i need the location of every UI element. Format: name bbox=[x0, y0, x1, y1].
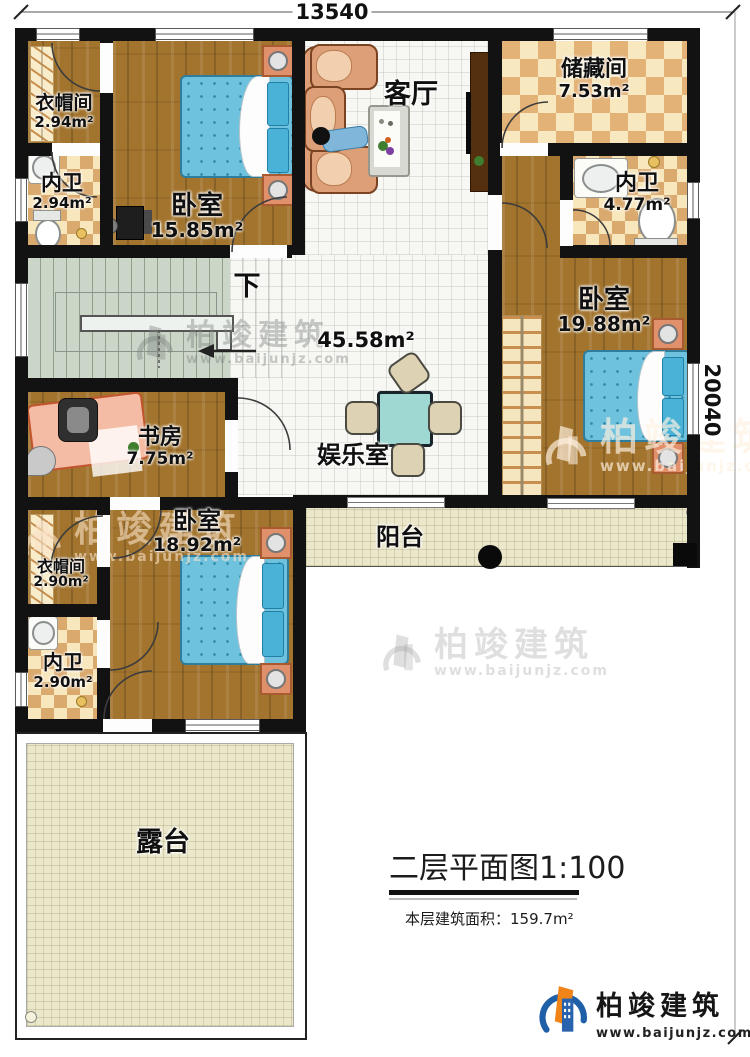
room-label-bedroom-bottomleft: 卧室18.92m² bbox=[153, 509, 241, 555]
wall bbox=[15, 28, 28, 732]
stairs-down-label: 下 bbox=[234, 272, 261, 301]
room-label-bath-topleft: 内卫2.94m² bbox=[32, 172, 91, 211]
window bbox=[36, 28, 80, 41]
office-chair bbox=[58, 398, 98, 442]
wall bbox=[28, 378, 225, 392]
title-block: 二层平面图1:100 本层建筑面积：159.7m² bbox=[389, 843, 625, 929]
room-label-bedroom-topleft: 卧室15.85m² bbox=[151, 192, 244, 242]
hall-area-label: 45.58m² bbox=[317, 329, 415, 352]
floor-area-label: 本层建筑面积： bbox=[405, 910, 510, 928]
bed-topleft bbox=[180, 75, 294, 178]
floor-area-line: 本层建筑面积：159.7m² bbox=[405, 908, 625, 929]
door-knob bbox=[76, 228, 87, 239]
coffee-table bbox=[368, 105, 410, 177]
chair bbox=[428, 401, 462, 435]
floor-terrace bbox=[26, 743, 294, 1027]
floor-balcony bbox=[306, 507, 698, 567]
window bbox=[15, 178, 28, 222]
room-label-study: 书房7.75m² bbox=[126, 426, 193, 468]
flower-purple bbox=[386, 147, 394, 155]
nightstand bbox=[652, 442, 684, 474]
plan-title: 二层平面图1:100 bbox=[389, 843, 625, 887]
flower-orange bbox=[385, 137, 391, 143]
door-opening bbox=[52, 143, 100, 156]
watermark-url: www.baijunjz.com bbox=[434, 662, 609, 682]
floor-plan-page: 柏竣建筑 www.baijunjz.com 柏竣建筑 www.baijunjz.… bbox=[0, 0, 750, 1057]
balcony-column bbox=[478, 545, 502, 569]
sliding-door-balcony bbox=[347, 497, 445, 508]
nightstand bbox=[260, 527, 292, 559]
wall bbox=[293, 497, 306, 732]
game-table bbox=[377, 391, 433, 447]
desk-lamp bbox=[26, 446, 56, 476]
door-opening bbox=[225, 420, 238, 472]
window bbox=[687, 363, 700, 435]
watermark: 柏竣建筑 www.baijunjz.com bbox=[378, 628, 609, 682]
bed-pillow bbox=[662, 357, 684, 396]
title-underline-thick bbox=[389, 890, 579, 895]
sliding-door-bedroom bbox=[547, 498, 635, 509]
room-label-living: 客厅 bbox=[384, 80, 438, 109]
door-opening bbox=[560, 200, 573, 246]
bed-pillow bbox=[267, 82, 289, 126]
sofa-cushion bbox=[316, 50, 352, 82]
room-label-terrace: 露台 bbox=[136, 828, 190, 857]
room-label-entertainment: 娱乐室 bbox=[317, 443, 389, 469]
bed-pillow bbox=[262, 563, 284, 609]
door-opening bbox=[230, 245, 287, 258]
room-label-cloakroom-bottomleft: 衣帽间2.90m² bbox=[33, 558, 88, 590]
brand-logo: 柏竣建筑 www.baijunjz.com bbox=[536, 982, 750, 1042]
room-label-cloakroom-topleft: 衣帽间2.94m² bbox=[34, 93, 93, 130]
window bbox=[15, 283, 28, 357]
door-opening bbox=[500, 143, 548, 156]
tv-screen bbox=[466, 92, 471, 154]
window bbox=[15, 672, 28, 707]
door-opening bbox=[103, 719, 152, 732]
wall bbox=[560, 245, 687, 258]
bed-blanket bbox=[239, 76, 270, 177]
bed-bottomleft bbox=[180, 555, 289, 665]
nightstand bbox=[652, 318, 684, 350]
balcony-pillar bbox=[673, 543, 697, 566]
sofa-cushion bbox=[316, 152, 352, 186]
sink-basin bbox=[32, 621, 55, 645]
wardrobe-right-bedroom bbox=[502, 315, 542, 497]
room-label-storage: 储藏间7.53m² bbox=[558, 58, 629, 101]
watermark-logo-icon bbox=[378, 629, 426, 681]
chair bbox=[345, 401, 379, 435]
wall bbox=[687, 28, 700, 568]
door-opening bbox=[488, 195, 502, 250]
wall bbox=[488, 41, 502, 497]
terrace-drain bbox=[25, 1011, 37, 1023]
floor-corridor-right bbox=[502, 156, 560, 250]
room-label-bath-right: 内卫4.77m² bbox=[603, 172, 670, 214]
nightstand bbox=[262, 45, 294, 77]
door-opening bbox=[100, 43, 113, 93]
door-opening bbox=[97, 515, 110, 567]
brand-logo-icon bbox=[536, 982, 590, 1042]
dimension-width: 13540 bbox=[292, 0, 371, 24]
bed-pillow bbox=[262, 611, 284, 657]
bed-blanket bbox=[637, 351, 665, 441]
nightstand bbox=[262, 174, 294, 206]
room-label-balcony: 阳台 bbox=[376, 525, 424, 551]
window bbox=[687, 182, 700, 219]
nightstand bbox=[260, 663, 292, 695]
brand-url: www.baijunjz.com bbox=[596, 1026, 750, 1041]
title-underline-thin bbox=[389, 898, 577, 900]
chair-seat bbox=[67, 407, 89, 433]
wall bbox=[15, 719, 305, 732]
table-dot bbox=[379, 119, 384, 124]
brand-name: 柏竣建筑 bbox=[596, 984, 750, 1023]
table-dot bbox=[388, 121, 393, 126]
door-knob bbox=[76, 696, 87, 707]
chair bbox=[391, 443, 425, 477]
tv-cabinet bbox=[470, 52, 490, 192]
wall bbox=[28, 604, 97, 617]
room-label-bedroom-right: 卧室19.88m² bbox=[558, 286, 651, 336]
bed-pillow bbox=[267, 128, 289, 173]
door-knob bbox=[648, 156, 660, 168]
person-head bbox=[312, 127, 330, 145]
floor-area-value: 159.7m² bbox=[510, 910, 574, 928]
window bbox=[155, 28, 254, 41]
bed-pillow bbox=[662, 398, 684, 436]
dimension-height: 20040 bbox=[700, 360, 724, 439]
room-label-bath-bottomleft: 内卫2.90m² bbox=[33, 652, 92, 690]
window bbox=[185, 719, 260, 732]
plant bbox=[474, 156, 484, 166]
window bbox=[553, 28, 648, 41]
tv-desk bbox=[116, 206, 144, 240]
bed-right bbox=[583, 350, 691, 442]
wall bbox=[292, 41, 305, 255]
terrace-outline bbox=[15, 732, 307, 1040]
stairs-railing bbox=[80, 315, 234, 332]
bed-blanket bbox=[236, 556, 265, 664]
door-opening bbox=[97, 620, 110, 668]
watermark-name: 柏竣建筑 bbox=[434, 628, 609, 662]
